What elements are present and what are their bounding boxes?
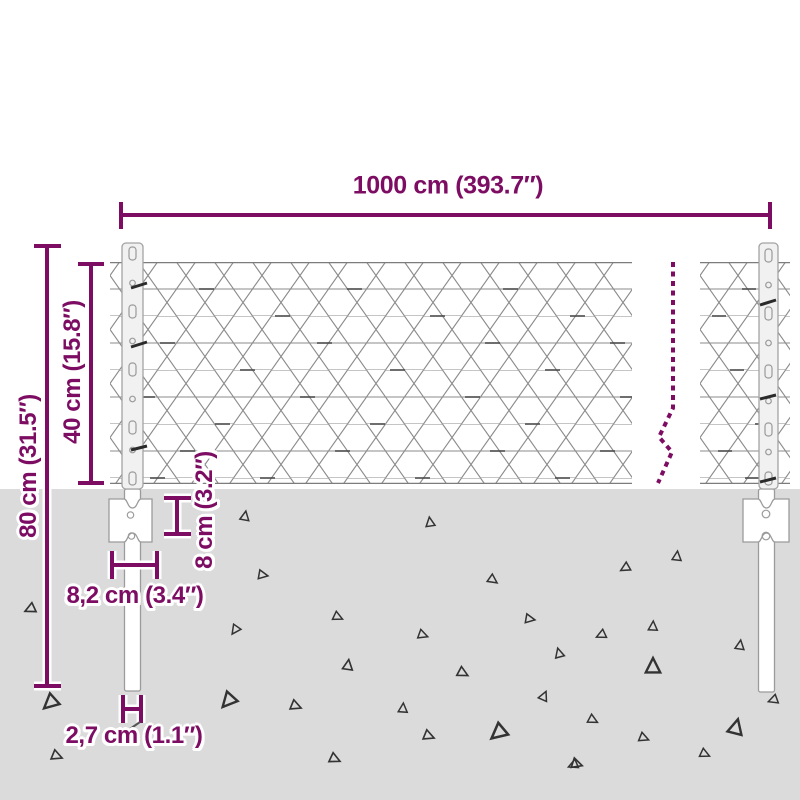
dimension-label-total-height: 80 cm (31.5″) (15, 394, 43, 538)
dimension-label-mesh-height: 40 cm (15.8″) (59, 300, 87, 444)
dimension-label-anchor-width: 8,2 cm (3.4″) (66, 582, 203, 610)
dimension-line-total-width (121, 202, 770, 229)
fence-dimension-diagram: 1000 cm (393.7″) 80 cm (31.5″) 40 cm (15… (0, 0, 800, 800)
dimension-label-anchor-depth: 8 cm (3.2″) (191, 451, 219, 569)
break-line (658, 262, 673, 483)
dimension-label-total-width: 1000 cm (393.7″) (353, 172, 543, 201)
diagram-drawing (0, 0, 800, 800)
dimension-label-post-width: 2,7 cm (1.1″) (65, 722, 202, 750)
fence-post-left (122, 243, 147, 489)
fence-post-right (759, 243, 778, 489)
